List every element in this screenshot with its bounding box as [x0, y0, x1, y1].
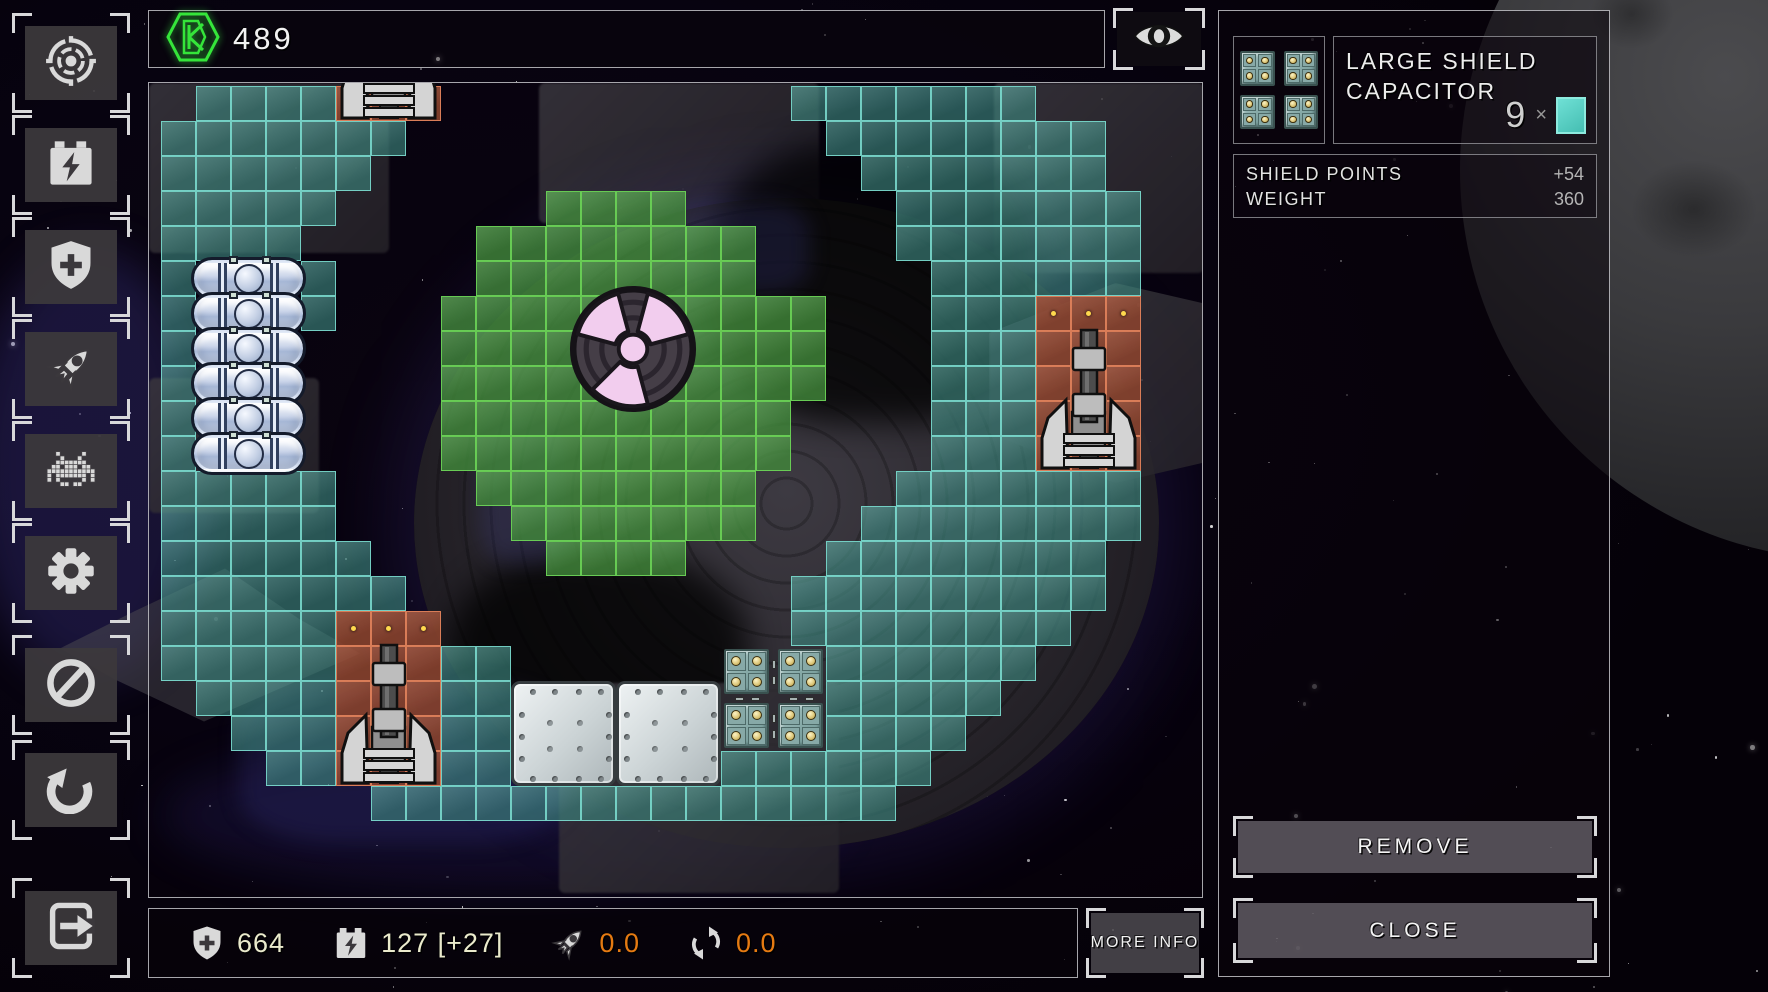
- gear-icon: [45, 545, 97, 602]
- module-fuel-tank[interactable]: [194, 260, 303, 297]
- stat-value: 664: [237, 928, 285, 959]
- module-fuel-tank[interactable]: [194, 400, 303, 437]
- toolbar-button-engines[interactable]: [12, 319, 130, 419]
- close-button[interactable]: CLOSE: [1233, 898, 1597, 963]
- credits-value: 489: [233, 21, 294, 57]
- module-fuel-tank[interactable]: [194, 435, 303, 472]
- module-fuel-tank[interactable]: [194, 365, 303, 402]
- stat-label: WEIGHT: [1246, 189, 1327, 210]
- stat-2: 0.0: [551, 925, 640, 961]
- toolbar-button-enemies[interactable]: [12, 421, 130, 521]
- ship-stats-bar: 664 127 [+27] 0.0 0.0: [148, 908, 1078, 978]
- more-info-button[interactable]: MORE INFO: [1086, 908, 1204, 978]
- close-label: CLOSE: [1233, 898, 1597, 963]
- toolbar-button-energy[interactable]: [12, 115, 130, 215]
- stat-3: 0.0: [688, 925, 777, 961]
- rocket-icon: [45, 341, 97, 398]
- shield-plus-icon: [45, 239, 97, 296]
- ship-build-area[interactable]: [148, 82, 1203, 898]
- battery-icon: [333, 925, 369, 961]
- remove-button[interactable]: REMOVE: [1233, 816, 1597, 878]
- weapon-ammo-dot: [351, 626, 356, 631]
- module-cannon[interactable]: [336, 82, 441, 121]
- visibility-toggle-button[interactable]: [1113, 8, 1205, 70]
- undo-icon: [45, 762, 97, 819]
- rotate-icon: [688, 925, 724, 961]
- module-cannon[interactable]: [336, 611, 441, 786]
- stat-value: 360: [1554, 189, 1584, 210]
- weapon-ammo-dot: [1121, 311, 1126, 316]
- stat-1: 127 [+27]: [333, 925, 503, 961]
- module-cannon[interactable]: [1036, 296, 1141, 471]
- shield-plus-icon: [189, 925, 225, 961]
- weapon-ammo-dot: [421, 626, 426, 631]
- module-fuel-tank[interactable]: [194, 295, 303, 332]
- module-shield-capacitor[interactable]: [721, 646, 826, 751]
- ship-editor-screen: 489: [0, 0, 1768, 992]
- stat-value: 0.0: [736, 928, 777, 959]
- item-count: 9: [1505, 94, 1526, 136]
- reactor-radiation-icon: [568, 284, 698, 414]
- toolbar-button-restrict[interactable]: [12, 635, 130, 735]
- module-fuel-tank[interactable]: [194, 330, 303, 367]
- exit-icon: [45, 900, 97, 957]
- item-cell-swatch: [1556, 97, 1586, 134]
- stat-label: SHIELD POINTS: [1246, 164, 1403, 185]
- item-title-box: LARGE SHIELD CAPACITOR 9 ×: [1333, 36, 1597, 144]
- invader-icon: [45, 443, 97, 500]
- module-armor-plate[interactable]: [616, 681, 721, 786]
- toolbar-button-targeting[interactable]: [12, 13, 130, 113]
- toolbar-button-exit[interactable]: [12, 878, 130, 978]
- stat-value: 0.0: [599, 928, 640, 959]
- target-icon: [45, 35, 97, 92]
- toolbar-button-undo[interactable]: [12, 740, 130, 840]
- eye-icon: [1133, 19, 1185, 58]
- remove-label: REMOVE: [1233, 816, 1597, 878]
- weapon-ammo-dot: [1086, 311, 1091, 316]
- toolbar-button-settings[interactable]: [12, 523, 130, 623]
- multiply-sign: ×: [1535, 104, 1547, 127]
- credits-bar: 489: [148, 10, 1105, 68]
- item-stats-box: SHIELD POINTS +54 WEIGHT 360: [1233, 154, 1597, 218]
- ban-icon: [45, 657, 97, 714]
- item-icon-box: [1233, 36, 1325, 144]
- installed-modules: [149, 83, 1202, 897]
- stat-value: 127 [+27]: [381, 928, 503, 959]
- hex-credits-icon: [165, 11, 221, 68]
- battery-icon: [45, 137, 97, 194]
- item-panel: LARGE SHIELD CAPACITOR 9 × SHIELD POINTS…: [1218, 10, 1610, 977]
- weapon-ammo-dot: [386, 626, 391, 631]
- weapon-ammo-dot: [1051, 311, 1056, 316]
- shield-capacitor-icon: [1237, 48, 1321, 132]
- stat-value: +54: [1553, 164, 1584, 185]
- more-info-label: MORE INFO: [1086, 908, 1204, 978]
- rocket-icon: [551, 925, 587, 961]
- toolbar-button-defense[interactable]: [12, 217, 130, 317]
- module-armor-plate[interactable]: [511, 681, 616, 786]
- stat-0: 664: [189, 925, 285, 961]
